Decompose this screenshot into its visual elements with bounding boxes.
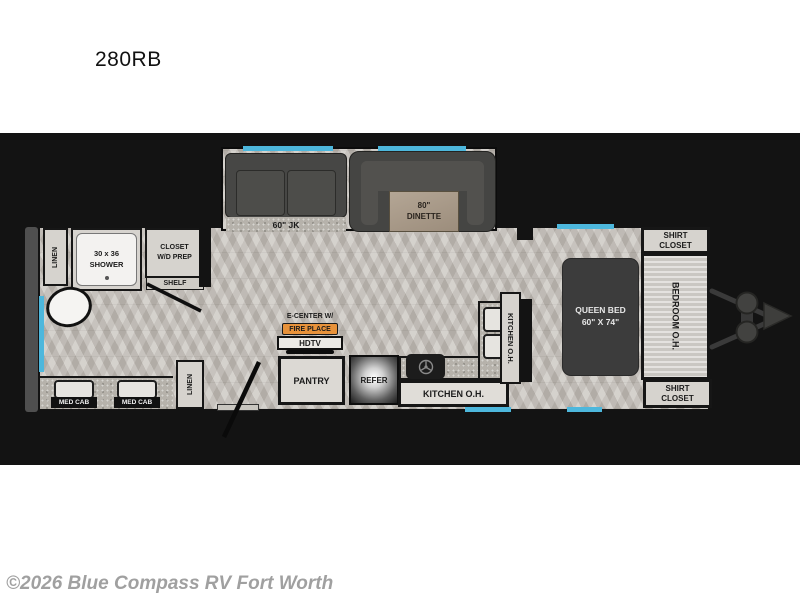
- pantry: PANTRY: [278, 356, 345, 405]
- sofa-seat-left: [236, 170, 285, 216]
- refrigerator: REFER: [349, 355, 399, 405]
- burner-icon: [418, 359, 434, 375]
- dinette-side-cushion-left: [361, 161, 378, 225]
- hdtv-label: HDTV: [299, 339, 321, 348]
- queen-bed-label-line1: QUEEN BED: [575, 305, 626, 317]
- med-cab-right: MED CAB: [114, 397, 160, 408]
- stove: [406, 354, 445, 379]
- linen-cabinet-rear: LINEN: [43, 228, 68, 286]
- kitchen-oh-bottom-label: KITCHEN O.H.: [423, 389, 484, 399]
- shower-size-label: 30 x 36: [94, 249, 119, 259]
- shower: 30 x 36 SHOWER: [71, 228, 142, 291]
- sofa-seat-right: [287, 170, 336, 216]
- linen-cabinet-front: LINEN: [176, 360, 204, 409]
- shirt-closet-top-line1: SHIRT: [664, 231, 688, 241]
- pantry-label: PANTRY: [294, 376, 330, 386]
- window-dinette: [378, 146, 466, 151]
- window-kitchen-bottom: [465, 407, 511, 412]
- shirt-closet-top-line2: CLOSET: [659, 241, 691, 251]
- fireplace-label: FIRE PLACE: [289, 326, 331, 333]
- ecenter-label-wrap: E-CENTER W/: [270, 311, 350, 322]
- shirt-closet-bottom-line2: CLOSET: [661, 394, 693, 404]
- shower-drain: [105, 276, 109, 280]
- window-bedroom-top: [557, 224, 614, 229]
- fireplace: FIRE PLACE: [282, 323, 338, 335]
- queen-bed-label-line2: 60" X 74": [582, 317, 619, 329]
- bedroom-wall-stub: [517, 225, 533, 240]
- shower-label: SHOWER: [90, 260, 124, 270]
- window-bedroom-bottom: [567, 407, 602, 412]
- copyright-text: ©2026 Blue Compass RV Fort Worth: [6, 573, 333, 595]
- shirt-closet-bottom-line1: SHIRT: [666, 384, 690, 394]
- hdtv: HDTV: [277, 336, 343, 350]
- window-sofa: [243, 146, 333, 151]
- kitchen-bedroom-wall: [520, 299, 532, 382]
- med-cab-left-label: MED CAB: [59, 399, 89, 406]
- refer-label: REFER: [360, 376, 387, 385]
- shirt-closet-bottom: SHIRT CLOSET: [643, 379, 712, 408]
- bedroom-oh-label: BEDROOM O.H.: [671, 282, 681, 350]
- kitchen-overhead-bottom: KITCHEN O.H.: [398, 380, 509, 407]
- window-bath-side: [39, 296, 44, 372]
- dinette-table: 80" DINETTE: [389, 191, 459, 232]
- queen-bed: QUEEN BED 60" X 74": [562, 258, 639, 376]
- dinette-size-label: 80": [418, 201, 431, 211]
- tv-screen: [286, 350, 334, 354]
- shelf: SHELF: [146, 277, 204, 290]
- ecenter-label: E-CENTER W/: [287, 313, 333, 320]
- shelf-label: SHELF: [164, 280, 187, 287]
- sofa-label: 60" JK: [273, 220, 300, 230]
- sofa-label-bar: 60" JK: [226, 217, 346, 232]
- closet-label-line2: W/D PREP: [157, 253, 192, 263]
- floorplan-page: 280RB 60" JK 80" DINETTE LINEN 30 x 36 S…: [0, 0, 800, 600]
- kitchen-oh-side-label: KITCHEN O.H.: [506, 313, 515, 364]
- med-cab-left: MED CAB: [51, 397, 97, 408]
- bedroom-overhead: BEDROOM O.H.: [641, 253, 710, 380]
- dinette-back-cushion: [361, 161, 484, 191]
- bath-wall: [199, 225, 211, 287]
- linen-rear-label: LINEN: [52, 247, 59, 268]
- med-cab-right-label: MED CAB: [122, 399, 152, 406]
- rear-wall: [25, 227, 38, 412]
- linen-front-label: LINEN: [187, 374, 194, 395]
- wd-prep-closet: CLOSET W/D PREP: [145, 228, 204, 278]
- dinette-label: DINETTE: [407, 212, 441, 222]
- entry-threshold: [217, 404, 259, 411]
- dinette-side-cushion-right: [467, 161, 484, 225]
- page-title: 280RB: [95, 48, 162, 72]
- shirt-closet-top: SHIRT CLOSET: [641, 227, 710, 254]
- closet-label-line1: CLOSET: [160, 243, 188, 253]
- kitchen-overhead-side: KITCHEN O.H.: [500, 292, 521, 384]
